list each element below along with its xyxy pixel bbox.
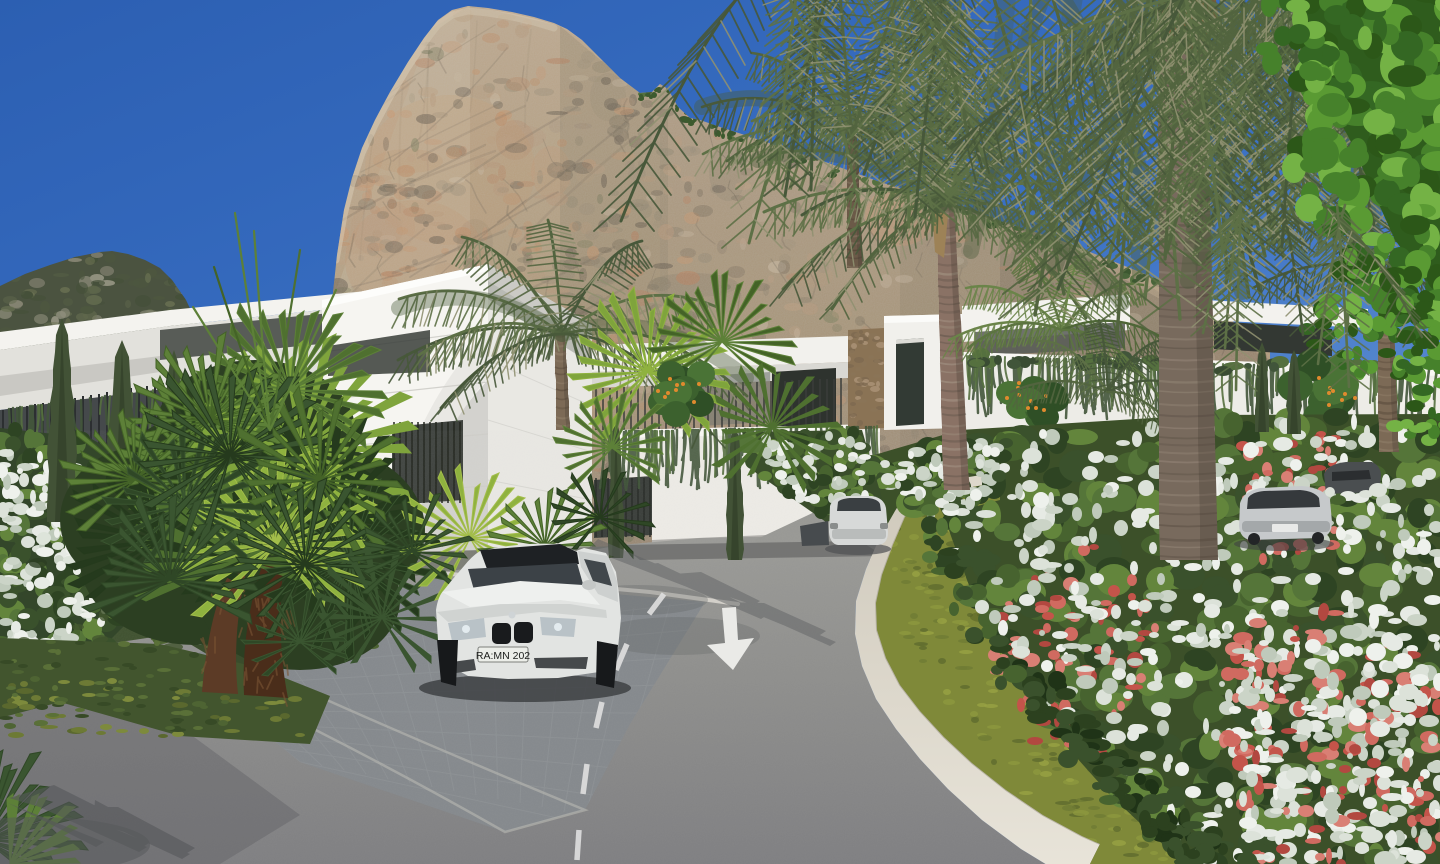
svg-text:RA:MN 202: RA:MN 202 <box>476 650 530 662</box>
